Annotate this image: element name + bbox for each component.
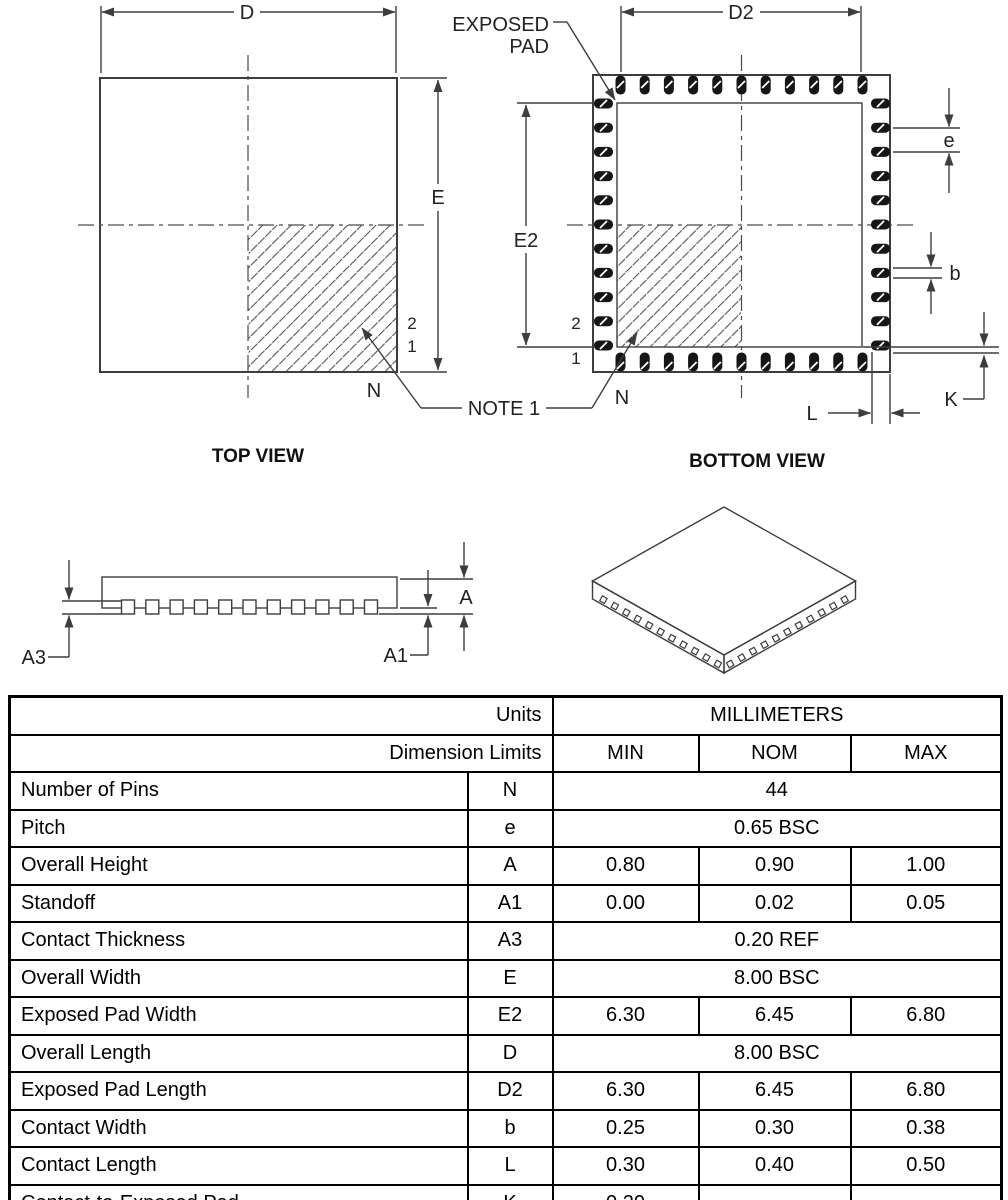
dim-symbol: K (468, 1185, 553, 1200)
dim-label-e: e (943, 130, 954, 152)
dim-span-value: 0.20 REF (553, 922, 1002, 960)
table-row: Overall Length D 8.00 BSC (10, 1035, 1002, 1073)
table-row: Overall Width E 8.00 BSC (10, 960, 1002, 998)
iso-top-face (593, 507, 856, 655)
dim-label-A1: A1 (384, 645, 408, 667)
dim-name: Overall Height (10, 847, 468, 885)
dim-symbol: b (468, 1110, 553, 1148)
dim-label-D2: D2 (728, 2, 754, 24)
dim-max: – (851, 1185, 1002, 1200)
dim-min: 0.30 (553, 1147, 699, 1185)
table-row: Number of Pins N 44 (10, 772, 1002, 810)
dim-label-D: D (240, 2, 254, 24)
iso-pin-bump (623, 609, 630, 617)
dim-label-A3: A3 (22, 647, 46, 669)
dim-symbol: A (468, 847, 553, 885)
dim-symbol: A1 (468, 885, 553, 923)
dim-max: 6.80 (851, 997, 1002, 1035)
dimension-table: Units MILLIMETERS Dimension Limits MIN N… (8, 695, 1003, 1200)
side-contact (365, 600, 378, 614)
dim-symbol: N (468, 772, 553, 810)
dim-min: 0.80 (553, 847, 699, 885)
table-row: Contact Length L 0.30 0.40 0.50 (10, 1147, 1002, 1185)
iso-pin-bump (668, 634, 675, 642)
table-row: Standoff A1 0.00 0.02 0.05 (10, 885, 1002, 923)
top-view: D E 2 1 N TOP VIEW (78, 2, 447, 467)
side-view-contacts (122, 600, 378, 614)
dim-symbol: L (468, 1147, 553, 1185)
top-view-pin1-label: 1 (407, 337, 416, 356)
dim-label-E: E (431, 187, 444, 209)
iso-pin-bump (749, 647, 756, 655)
dim-label-A: A (459, 587, 473, 609)
dim-span-value: 44 (553, 772, 1002, 810)
iso-pin-bump (761, 641, 768, 649)
dim-nom: 0.90 (699, 847, 851, 885)
dim-span-value: 8.00 BSC (553, 1035, 1002, 1073)
bottom-view-pinN-label: N (615, 387, 629, 409)
top-view-hatched-area (249, 225, 398, 372)
iso-pin-bump (829, 602, 836, 610)
iso-pin-bump (703, 654, 710, 662)
exposed-pad-label-line1: EXPOSED (452, 14, 549, 36)
dim-name: Contact Width (10, 1110, 468, 1148)
dim-symbol: e (468, 810, 553, 848)
table-row: Contact Width b 0.25 0.30 0.38 (10, 1110, 1002, 1148)
dim-symbol: E (468, 960, 553, 998)
iso-pin-bump (795, 622, 802, 630)
dim-symbol: E2 (468, 997, 553, 1035)
dim-label-K: K (944, 389, 958, 411)
dim-min: 6.30 (553, 997, 699, 1035)
dim-max: 1.00 (851, 847, 1002, 885)
exposed-pad-callout: EXPOSED PAD (452, 14, 615, 100)
dim-name: Standoff (10, 885, 468, 923)
dim-max: 0.05 (851, 885, 1002, 923)
dim-symbol: D (468, 1035, 553, 1073)
dimension-A1: A1 (384, 570, 437, 667)
dim-label-L: L (806, 403, 817, 425)
bottom-view-pin1-label: 1 (571, 349, 580, 368)
table-row: Exposed Pad Length D2 6.30 6.45 6.80 (10, 1072, 1002, 1110)
dimension-limits-label: Dimension Limits (10, 735, 553, 773)
top-view-title: TOP VIEW (212, 446, 304, 467)
side-contact (170, 600, 183, 614)
dimension-b: b (893, 232, 961, 314)
dim-name: Pitch (10, 810, 468, 848)
side-contact (194, 600, 207, 614)
exposed-pad-label-line2: PAD (509, 36, 549, 58)
top-view-pinN-label: N (367, 380, 381, 402)
iso-pin-bump (680, 641, 687, 649)
dim-label-E2: E2 (514, 230, 538, 252)
top-view-pin2-label: 2 (407, 314, 416, 333)
iso-pin-bump (784, 628, 791, 636)
dim-name: Number of Pins (10, 772, 468, 810)
bottom-view-pin2-label: 2 (571, 314, 580, 333)
dim-nom: 0.30 (699, 1110, 851, 1148)
dim-span-value: 8.00 BSC (553, 960, 1002, 998)
iso-pin-bump (600, 596, 607, 604)
side-contact (292, 600, 305, 614)
max-header: MAX (851, 735, 1002, 773)
dim-min: 6.30 (553, 1072, 699, 1110)
units-label: Units (10, 697, 553, 735)
nom-header: NOM (699, 735, 851, 773)
iso-pin-bump (634, 615, 641, 623)
dim-span-value: 0.65 BSC (553, 810, 1002, 848)
side-contact (122, 600, 135, 614)
iso-pin-bump (691, 647, 698, 655)
dim-name: Contact-to-Exposed Pad (10, 1185, 468, 1200)
package-drawing-page: D E 2 1 N TOP VIEW D2 (0, 0, 1008, 1200)
dim-max: 6.80 (851, 1072, 1002, 1110)
dim-min: 0.25 (553, 1110, 699, 1148)
table-row: Pitch e 0.65 BSC (10, 810, 1002, 848)
bottom-view-title: BOTTOM VIEW (689, 451, 825, 472)
dim-name: Exposed Pad Length (10, 1072, 468, 1110)
package-drawing-svg: D E 2 1 N TOP VIEW D2 (0, 0, 1008, 695)
side-contact (267, 600, 280, 614)
table-header-limits-row: Dimension Limits MIN NOM MAX (10, 735, 1002, 773)
table-header-units-row: Units MILLIMETERS (10, 697, 1002, 735)
table-row: Contact Thickness A3 0.20 REF (10, 922, 1002, 960)
iso-pin-bump (657, 628, 664, 636)
dim-name: Exposed Pad Width (10, 997, 468, 1035)
dim-label-b: b (949, 263, 960, 285)
side-contact (243, 600, 256, 614)
iso-pin-bump (714, 660, 721, 668)
dim-min: 0.20 (553, 1185, 699, 1200)
dim-max: 0.38 (851, 1110, 1002, 1148)
side-contact (219, 600, 232, 614)
side-view: A3 A A1 (22, 542, 474, 669)
side-contact (340, 600, 353, 614)
iso-pin-bump (611, 602, 618, 610)
dim-min: 0.00 (553, 885, 699, 923)
dim-name: Overall Length (10, 1035, 468, 1073)
table-row: Contact-to-Exposed Pad K 0.20 – – (10, 1185, 1002, 1200)
iso-pin-bump (738, 654, 745, 662)
dim-nom: 0.40 (699, 1147, 851, 1185)
iso-pin-bump (818, 609, 825, 617)
dim-name: Contact Length (10, 1147, 468, 1185)
iso-pin-bump (841, 596, 848, 604)
note1-label: NOTE 1 (468, 398, 540, 420)
dim-nom: 0.02 (699, 885, 851, 923)
iso-pin-bump (772, 634, 779, 642)
dim-name: Overall Width (10, 960, 468, 998)
dim-max: 0.50 (851, 1147, 1002, 1185)
dim-symbol: A3 (468, 922, 553, 960)
bottom-view-hatched-area (617, 225, 741, 347)
dim-nom: 6.45 (699, 997, 851, 1035)
iso-pin-bump (645, 622, 652, 630)
dimension-A: A (379, 542, 473, 651)
dim-symbol: D2 (468, 1072, 553, 1110)
dim-name: Contact Thickness (10, 922, 468, 960)
units-value: MILLIMETERS (553, 697, 1002, 735)
side-contact (316, 600, 329, 614)
table-row: Overall Height A 0.80 0.90 1.00 (10, 847, 1002, 885)
side-contact (146, 600, 159, 614)
dimension-K: K (863, 312, 999, 411)
iso-pin-bump (726, 660, 733, 668)
min-header: MIN (553, 735, 699, 773)
table-row: Exposed Pad Width E2 6.30 6.45 6.80 (10, 997, 1002, 1035)
dim-nom: – (699, 1185, 851, 1200)
dim-nom: 6.45 (699, 1072, 851, 1110)
dimension-e-pitch: e (893, 88, 960, 193)
iso-pin-bump (807, 615, 814, 623)
isometric-view (593, 507, 856, 673)
